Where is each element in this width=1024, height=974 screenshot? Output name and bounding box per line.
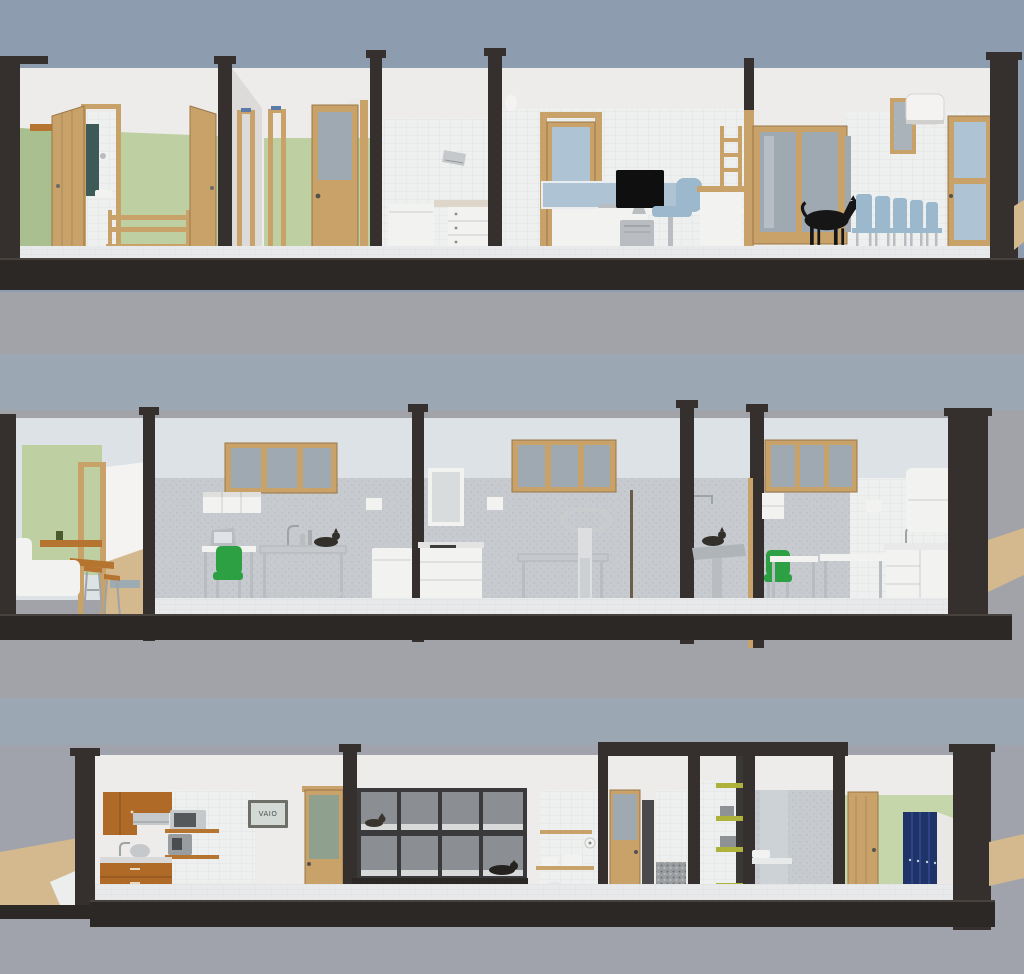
small-sink bbox=[752, 850, 770, 858]
room-break bbox=[14, 445, 146, 638]
storage-box bbox=[562, 855, 582, 866]
towel-holder bbox=[866, 500, 881, 512]
dark-opening bbox=[642, 800, 654, 892]
storage-box bbox=[720, 836, 736, 847]
coffee-machine bbox=[168, 834, 192, 855]
pole bbox=[630, 490, 633, 616]
window bbox=[765, 440, 857, 492]
storage-box bbox=[720, 806, 734, 816]
cistern-shelf bbox=[752, 858, 792, 864]
shelf-post bbox=[736, 756, 744, 904]
plant-cup bbox=[56, 531, 63, 540]
room-utility bbox=[382, 118, 498, 268]
cut-wall bbox=[0, 60, 20, 272]
small-sink bbox=[542, 857, 558, 866]
wall-cabinet bbox=[906, 468, 952, 532]
wall-cabinet bbox=[203, 492, 261, 513]
wood-shelf-2 bbox=[165, 855, 219, 859]
floor-slab bbox=[90, 900, 995, 927]
wood-shelf bbox=[165, 829, 219, 833]
teal-panel bbox=[86, 124, 99, 196]
cut-wall bbox=[143, 411, 155, 641]
tv-brand-label: VAIO bbox=[259, 810, 278, 818]
kennel-cages bbox=[352, 788, 528, 887]
section-3-back: VAIO bbox=[0, 742, 1024, 930]
air-conditioner bbox=[906, 94, 944, 124]
floor-slab bbox=[0, 258, 1024, 290]
microwave bbox=[170, 810, 206, 830]
cut-wall bbox=[370, 54, 382, 272]
kettle bbox=[130, 844, 150, 858]
cut-wall bbox=[0, 414, 16, 640]
window bbox=[512, 440, 616, 492]
wall-hooks bbox=[30, 124, 52, 131]
glazed-wood-door bbox=[312, 105, 358, 270]
render-stage: VAIO bbox=[0, 0, 1024, 974]
cut-wall bbox=[744, 58, 754, 112]
cut-wall bbox=[75, 752, 95, 912]
floor-slab bbox=[0, 614, 1012, 640]
telephone bbox=[706, 199, 720, 207]
outside-floor bbox=[989, 834, 1024, 886]
wc-sink bbox=[95, 190, 112, 197]
outside-floor bbox=[988, 528, 1024, 592]
section-2-middle bbox=[0, 400, 1024, 648]
cut-wall bbox=[488, 52, 502, 272]
wall-tv: VAIO bbox=[248, 800, 288, 828]
section-1-front bbox=[0, 48, 1024, 290]
wall-shelf bbox=[762, 493, 784, 519]
cut-ceiling-band bbox=[598, 742, 848, 756]
range-hood bbox=[133, 813, 169, 825]
wall-table bbox=[40, 540, 102, 547]
room-grooming bbox=[692, 478, 750, 610]
room-reception bbox=[502, 95, 752, 270]
cut-wall bbox=[990, 56, 1018, 272]
section-render: VAIO bbox=[0, 0, 1024, 974]
open-wood-door bbox=[52, 106, 84, 262]
mirror-cabinet bbox=[428, 468, 464, 526]
towel-dispenser bbox=[487, 497, 503, 510]
window bbox=[225, 443, 337, 493]
door-sign bbox=[241, 108, 251, 112]
outside-floor bbox=[1014, 200, 1024, 250]
door-sign bbox=[271, 106, 281, 110]
towel-dispenser bbox=[366, 498, 382, 510]
wall-lamp bbox=[505, 95, 517, 111]
cut-wall bbox=[948, 412, 988, 638]
cut-wall bbox=[218, 60, 232, 272]
glazed-door bbox=[948, 116, 992, 268]
